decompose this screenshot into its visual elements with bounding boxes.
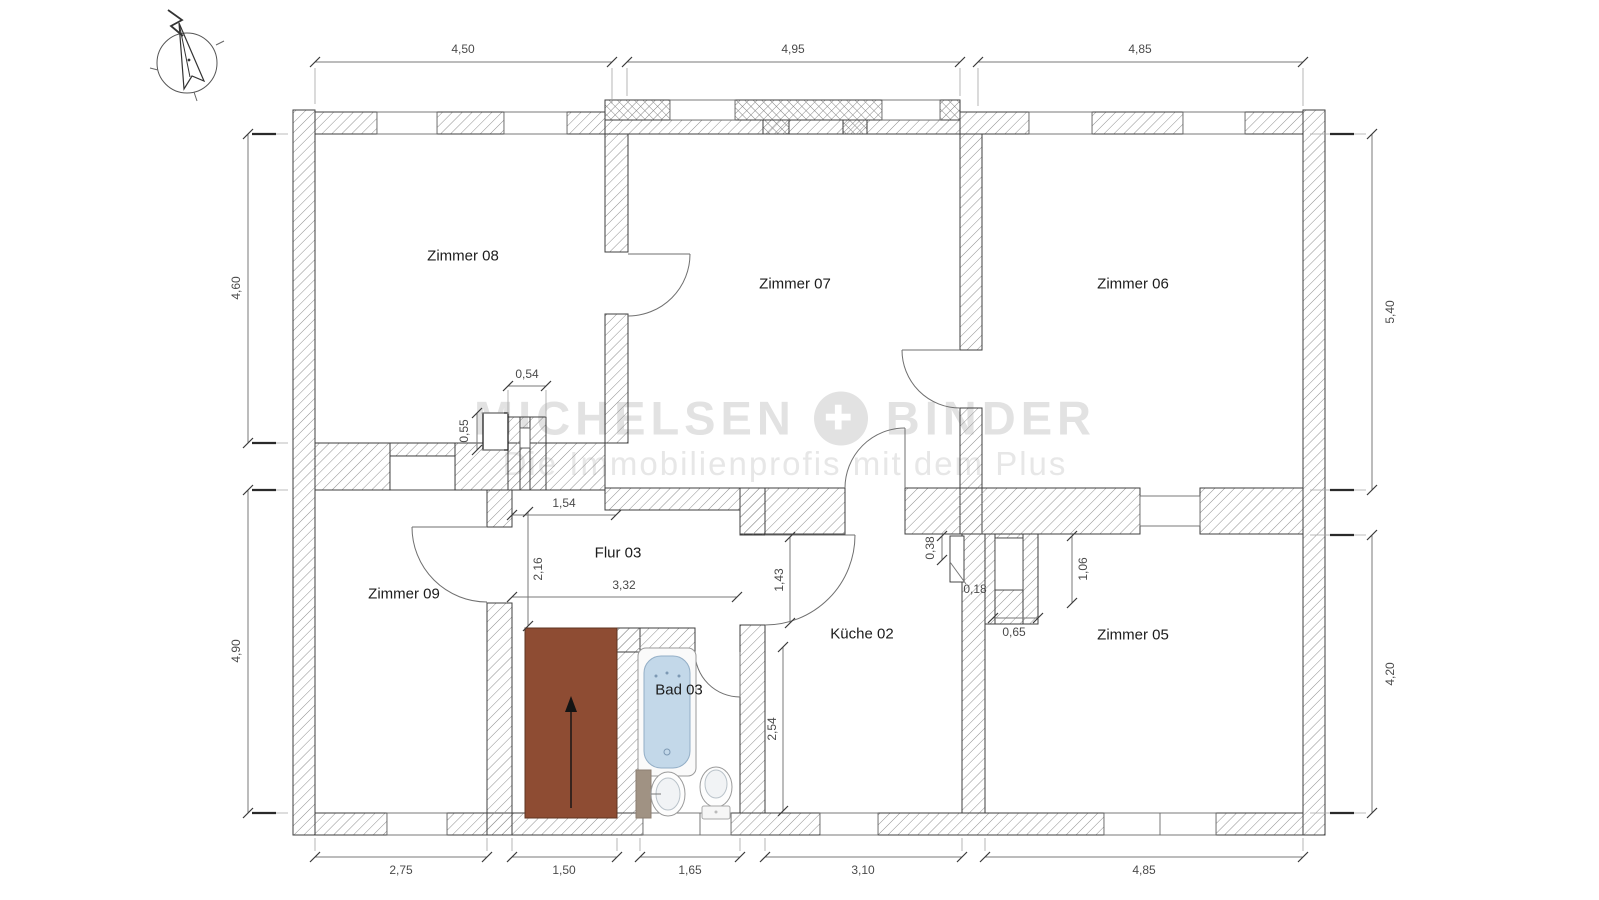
dim-label-top-3: 4,85 — [1128, 42, 1151, 56]
dim-left-2 — [243, 485, 253, 818]
dim-kueche-door — [785, 532, 795, 628]
dim-label-flur-top: 1,54 — [552, 496, 575, 510]
compass-rose — [150, 10, 224, 101]
window — [670, 100, 735, 120]
dim-label-top-1: 4,50 — [451, 42, 474, 56]
dim-flur-bottom — [507, 592, 742, 602]
dim-label-bottom-1: 2,75 — [389, 863, 412, 877]
bathroom-fixtures — [636, 648, 732, 819]
window — [1183, 112, 1245, 134]
dim-top-2 — [622, 57, 965, 67]
bathtub — [638, 648, 696, 776]
dim-label-shaft-d: 0,65 — [1002, 625, 1025, 639]
chimney-slot — [520, 428, 530, 448]
dim-label-chimney-w: 0,54 — [515, 367, 538, 381]
dim-bottom-5 — [980, 852, 1308, 862]
dim-chimney-w — [503, 381, 551, 391]
dim-label-right-1: 5,40 — [1383, 300, 1397, 323]
chimney-shaft — [483, 413, 508, 450]
dim-label-bottom-5: 4,85 — [1132, 863, 1155, 877]
door-zimmer07-zimmer06 — [902, 350, 960, 408]
wall-niche — [390, 456, 455, 490]
dim-top-1 — [310, 57, 617, 67]
dim-bottom-3 — [635, 852, 745, 862]
room-label-zimmer-06: Zimmer 06 — [1097, 276, 1169, 293]
dim-label-shaft-b: 0,18 — [963, 582, 986, 596]
room-label-kueche-02: Küche 02 — [830, 626, 893, 643]
room-label-flur-03: Flur 03 — [595, 545, 642, 562]
dim-label-kueche-door: 1,43 — [772, 568, 786, 591]
dim-label-shaft-c: 1,06 — [1076, 557, 1090, 580]
dim-bottom-4 — [760, 852, 967, 862]
dim-top-3 — [973, 57, 1308, 67]
dim-bottom-1 — [310, 852, 492, 862]
staircase — [525, 628, 617, 818]
dim-flur-top — [507, 510, 621, 520]
room-label-zimmer-05: Zimmer 05 — [1097, 627, 1169, 644]
dim-label-bottom-4: 3,10 — [851, 863, 874, 877]
room-label-zimmer-07: Zimmer 07 — [759, 276, 831, 293]
toilet — [700, 767, 732, 819]
floorplan-page: MICHELSEN ✚ BINDER Die Immobilienprofis … — [0, 0, 1599, 900]
room-label-zimmer-09: Zimmer 09 — [368, 586, 440, 603]
dim-label-kueche-height: 2,54 — [765, 717, 779, 740]
dim-label-top-2: 4,95 — [781, 42, 804, 56]
dim-label-left-1: 4,60 — [229, 276, 243, 299]
dim-right-1 — [1367, 129, 1377, 495]
exterior-wall-right — [1303, 110, 1325, 835]
sink — [636, 770, 685, 818]
dim-bottom-2 — [507, 852, 622, 862]
window — [820, 813, 878, 835]
dim-right-2 — [1367, 530, 1377, 818]
wall-shaft — [995, 538, 1023, 590]
exterior-wall-left — [293, 110, 315, 835]
window — [504, 112, 567, 134]
dim-kueche-height — [778, 642, 788, 816]
room-label-zimmer-08: Zimmer 08 — [427, 248, 499, 265]
room-label-bad-03: Bad 03 — [655, 682, 703, 699]
dim-shaft-a — [937, 531, 947, 565]
wall-opening — [1140, 496, 1200, 526]
dim-label-chimney-h: 0,55 — [457, 419, 471, 442]
door-zimmer07 — [845, 428, 905, 488]
dim-left-1 — [243, 129, 253, 448]
dim-label-right-2: 4,20 — [1383, 662, 1397, 685]
dim-label-bottom-3: 1,65 — [678, 863, 701, 877]
kueche-shaft — [950, 536, 964, 582]
floorplan-drawing — [0, 0, 1599, 900]
door-zimmer08-zimmer07 — [628, 254, 690, 316]
window — [882, 100, 940, 120]
dim-label-left-2: 4,90 — [229, 639, 243, 662]
dim-label-bottom-2: 1,50 — [552, 863, 575, 877]
window — [1029, 112, 1092, 134]
dim-label-shaft-a: 0,38 — [923, 536, 937, 559]
dim-label-flur-left: 2,16 — [531, 557, 545, 580]
window — [387, 813, 447, 835]
window — [377, 112, 437, 134]
dim-label-flur-bottom: 3,32 — [612, 578, 635, 592]
